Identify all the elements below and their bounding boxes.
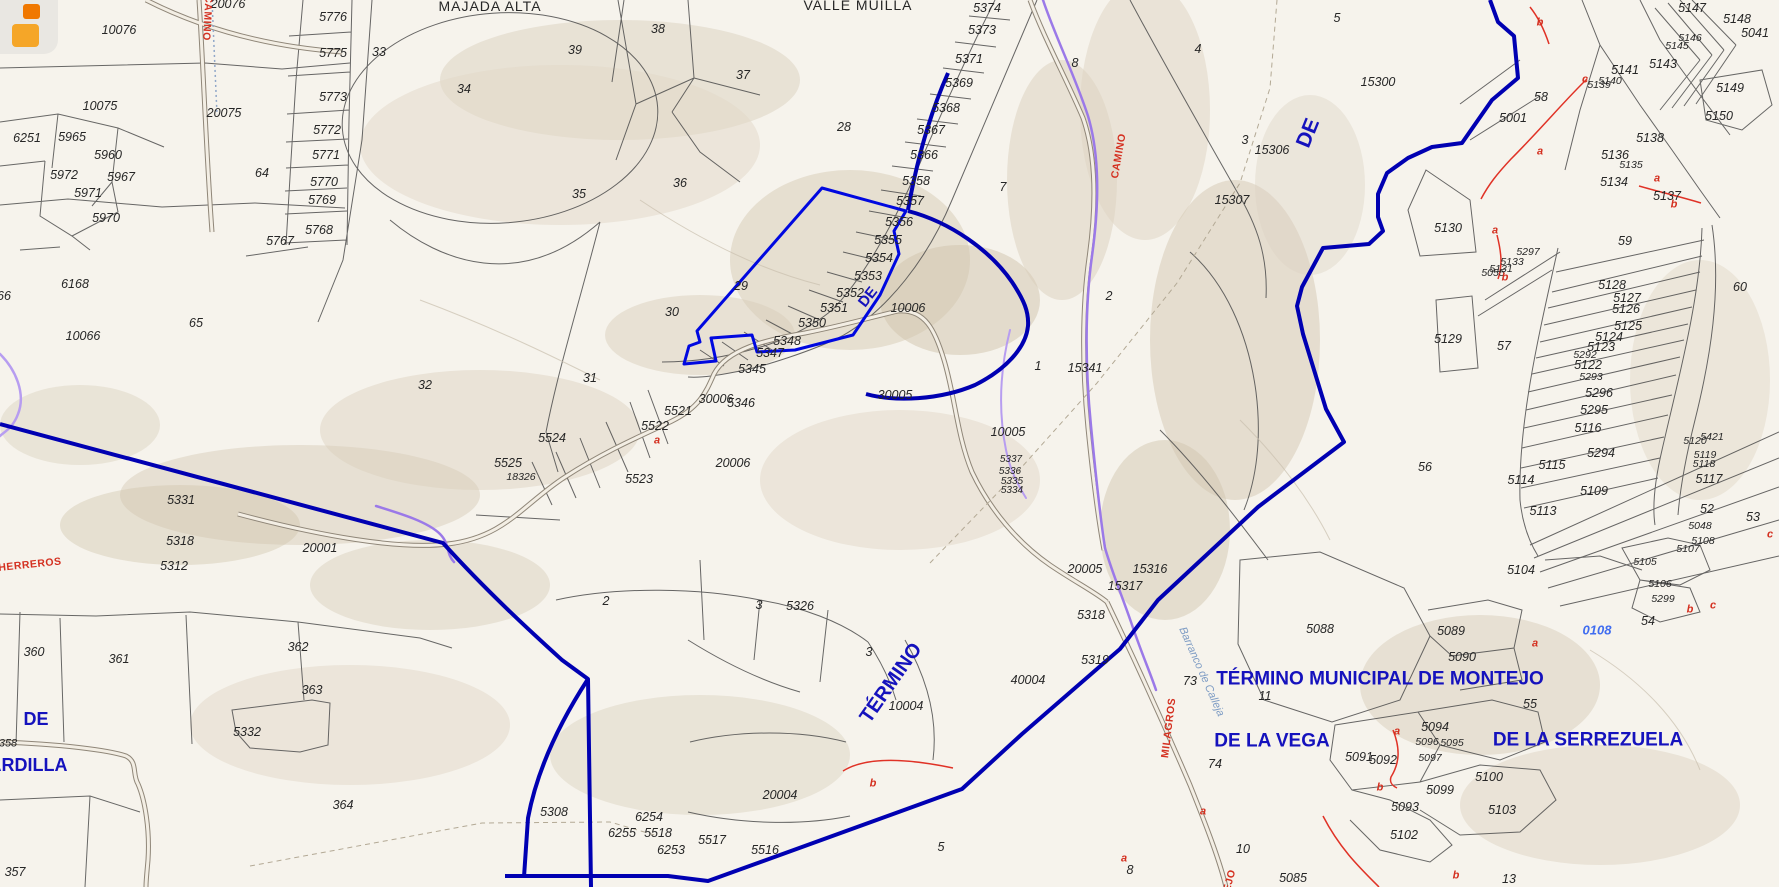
parcel-number-label: 5373 bbox=[968, 24, 996, 37]
parcel-number-label: 5118 bbox=[1693, 459, 1716, 470]
parcel-number-label: 5374 bbox=[973, 2, 1001, 15]
parcel-number-label: 5095 bbox=[1440, 738, 1463, 749]
parcel-number-label: 5145 bbox=[1665, 41, 1688, 52]
zone-letter-label: c bbox=[1582, 75, 1588, 86]
parcel-number-label: 5088 bbox=[1306, 623, 1334, 636]
parcel-number-label: 5143 bbox=[1649, 58, 1677, 71]
parcel-number-label: 5776 bbox=[319, 11, 347, 24]
parcel-number-label: 5967 bbox=[107, 171, 135, 184]
parcel-number-label: 5117 bbox=[1696, 473, 1723, 486]
parcel-number-label: 5041 bbox=[1741, 27, 1769, 40]
zone-letter-label: a bbox=[1394, 727, 1400, 738]
parcel-number-label: 15300 bbox=[1361, 76, 1396, 89]
parcel-number-label: 5345 bbox=[738, 363, 766, 376]
parcel-number-label: 5517 bbox=[698, 834, 726, 847]
parcel-number-label: 5350 bbox=[798, 317, 826, 330]
orange-square-icon bbox=[12, 24, 39, 47]
parcel-number-label: 1 bbox=[1035, 360, 1042, 373]
place-name-label: MAJADA ALTA bbox=[438, 0, 541, 13]
parcel-number-label: 5106 bbox=[1648, 579, 1671, 590]
parcel-number-label: 5294 bbox=[1587, 447, 1615, 460]
parcel-number-label: 361 bbox=[109, 653, 130, 666]
parcel-number-label: 5128 bbox=[1598, 279, 1626, 292]
parcel-number-label: 5768 bbox=[305, 224, 333, 237]
parcel-number-label: 15307 bbox=[1215, 194, 1250, 207]
road-name-label: MILAGROS bbox=[1160, 697, 1178, 758]
parcel-number-label: 39 bbox=[568, 44, 582, 57]
parcel-number-label: 5770 bbox=[310, 176, 338, 189]
municipality-label: ARDILLA bbox=[0, 756, 68, 774]
parcel-number-label: 5141 bbox=[1611, 64, 1639, 77]
parcel-number-label: 7 bbox=[1000, 181, 1007, 194]
parcel-number-label: 74 bbox=[1208, 758, 1222, 771]
parcel-number-label: 3 bbox=[1242, 134, 1249, 147]
zone-letter-label: b bbox=[1671, 200, 1678, 211]
parcel-number-label: 5124 bbox=[1595, 331, 1623, 344]
parcel-number-label: 10066 bbox=[66, 330, 101, 343]
parcel-number-label: 363 bbox=[302, 684, 323, 697]
parcel-number-label: 15317 bbox=[1108, 580, 1143, 593]
parcel-number-label: 5318 bbox=[1077, 609, 1105, 622]
parcel-number-label: 53 bbox=[1746, 511, 1760, 524]
parcel-number-label: 3 bbox=[866, 646, 873, 659]
parcel-number-label: 5522 bbox=[641, 420, 669, 433]
parcel-number-label: 6255 bbox=[608, 827, 636, 840]
parcel-number-label: 5336 bbox=[999, 467, 1021, 477]
parcel-number-label: 15316 bbox=[1133, 563, 1168, 576]
parcel-number-label: 5354 bbox=[865, 252, 893, 265]
parcel-number-label: 5104 bbox=[1507, 564, 1535, 577]
parcel-number-label: 5133 bbox=[1500, 257, 1523, 268]
parcel-number-label: 5129 bbox=[1434, 333, 1462, 346]
parcel-number-label: 10 bbox=[1236, 843, 1250, 856]
municipality-label: DE bbox=[1293, 116, 1323, 151]
parcel-number-label: 5048 bbox=[1688, 521, 1711, 532]
parcel-number-label: 5366 bbox=[910, 149, 938, 162]
parcel-number-label: 30006 bbox=[699, 393, 734, 406]
parcel-number-label: 5293 bbox=[1579, 372, 1602, 383]
parcel-number-label: 20075 bbox=[207, 107, 242, 120]
parcel-number-label: 5148 bbox=[1723, 13, 1751, 26]
parcel-number-label: 5109 bbox=[1580, 485, 1608, 498]
parcel-number-label: 5094 bbox=[1421, 721, 1449, 734]
parcel-number-label: 5355 bbox=[874, 234, 902, 247]
parcel-number-label: 5308 bbox=[540, 806, 568, 819]
parcel-number-label: 8 bbox=[1127, 864, 1134, 877]
parcel-number-label: 20006 bbox=[716, 457, 751, 470]
parcel-number-label: 38 bbox=[651, 23, 665, 36]
parcel-number-label: 5767 bbox=[266, 235, 294, 248]
parcel-number-label: 10006 bbox=[891, 302, 926, 315]
parcel-number-label: 5769 bbox=[308, 194, 336, 207]
cadastral-map[interactable]: 1007620076100752007557765775577357725771… bbox=[0, 0, 1779, 887]
parcel-number-label: 3 bbox=[756, 599, 763, 612]
parcel-number-label: 58 bbox=[1534, 91, 1548, 104]
parcel-number-label: 5100 bbox=[1475, 771, 1503, 784]
parcel-number-label: 0108 bbox=[1583, 624, 1612, 637]
parcel-number-label: 5775 bbox=[319, 47, 347, 60]
zone-letter-label: b bbox=[1377, 783, 1384, 794]
parcel-number-label: 358 bbox=[0, 739, 17, 750]
parcel-number-label: 20004 bbox=[763, 789, 798, 802]
parcel-number-label: 5092 bbox=[1369, 754, 1397, 767]
parcel-number-label: 54 bbox=[1641, 615, 1655, 628]
parcel-number-label: 5337 bbox=[1000, 455, 1022, 465]
zone-letter-label: b bbox=[1453, 871, 1460, 882]
stream-name-label: Barranco de Calleja bbox=[1176, 626, 1225, 719]
parcel-number-label: 5356 bbox=[885, 216, 913, 229]
parcel-number-label: 5146 bbox=[1678, 33, 1701, 44]
parcel-number-label: 65 bbox=[189, 317, 203, 330]
parcel-number-label: 5138 bbox=[1636, 132, 1664, 145]
parcel-number-label: 5521 bbox=[664, 405, 692, 418]
municipality-label: TÉRMINO MUNICIPAL DE MONTEJO bbox=[1216, 670, 1544, 689]
parcel-number-label: 5523 bbox=[625, 473, 653, 486]
parcel-number-label: 5319 bbox=[1081, 654, 1109, 667]
parcel-number-label: 11 bbox=[1259, 690, 1272, 703]
parcel-number-label: 10076 bbox=[102, 24, 137, 37]
parcel-number-label: 2 bbox=[1106, 290, 1113, 303]
parcel-number-label: 10005 bbox=[991, 426, 1026, 439]
parcel-number-label: 15341 bbox=[1068, 362, 1103, 375]
parcel-number-label: 5318 bbox=[166, 535, 194, 548]
parcel-number-label: 5369 bbox=[945, 77, 973, 90]
parcel-number-label: 60 bbox=[1733, 281, 1747, 294]
parcel-number-label: 5099 bbox=[1426, 784, 1454, 797]
parcel-number-label: 5150 bbox=[1705, 110, 1733, 123]
orange-square-icon bbox=[23, 4, 40, 19]
zone-letter-label: a bbox=[1532, 639, 1538, 650]
zone-letter-label: b bbox=[1537, 18, 1544, 29]
parcel-number-label: 5297 bbox=[1516, 247, 1539, 258]
zone-letter-label: b bbox=[1502, 273, 1509, 284]
parcel-number-label: 5122 bbox=[1574, 359, 1602, 372]
parcel-number-label: 5123 bbox=[1587, 341, 1615, 354]
parcel-number-label: 5971 bbox=[74, 187, 102, 200]
zone-letter-label: b bbox=[870, 779, 877, 790]
parcel-number-label: 4 bbox=[1195, 43, 1202, 56]
parcel-number-label: 5296 bbox=[1585, 387, 1613, 400]
parcel-number-label: 40004 bbox=[1011, 674, 1046, 687]
parcel-number-label: 59 bbox=[1618, 235, 1632, 248]
parcel-number-label: 5147 bbox=[1678, 2, 1706, 15]
parcel-number-label: 5368 bbox=[932, 102, 960, 115]
municipality-label: DE LA VEGA bbox=[1214, 732, 1329, 751]
parcel-number-label: 13 bbox=[1502, 873, 1516, 886]
parcel-number-label: 2 bbox=[603, 595, 610, 608]
zone-letter-label: a bbox=[1121, 854, 1127, 865]
parcel-number-label: 5295 bbox=[1580, 404, 1608, 417]
parcel-number-label: 5421 bbox=[1700, 432, 1723, 443]
road-name-label: CAMINO bbox=[201, 0, 214, 41]
parcel-number-label: 5346 bbox=[727, 397, 755, 410]
parcel-number-label: 5292 bbox=[1573, 350, 1596, 361]
parcel-number-label: 5135 bbox=[1619, 160, 1642, 171]
parcel-number-label: 37 bbox=[736, 69, 750, 82]
parcel-number-label: 66 bbox=[0, 290, 11, 303]
parcel-number-label: 5299 bbox=[1651, 594, 1674, 605]
parcel-number-label: 10004 bbox=[889, 700, 924, 713]
parcel-number-label: 5116 bbox=[1575, 422, 1602, 435]
parcel-number-label: 5125 bbox=[1614, 320, 1642, 333]
parcel-number-label: 36 bbox=[673, 177, 687, 190]
parcel-number-label: 5312 bbox=[160, 560, 188, 573]
parcel-number-label: 5332 bbox=[233, 726, 261, 739]
parcel-number-label: 5518 bbox=[644, 827, 672, 840]
road-name-label: HERREROS bbox=[0, 556, 62, 573]
parcel-number-label: 30 bbox=[665, 306, 679, 319]
parcel-number-label: 5131 bbox=[1489, 264, 1512, 275]
parcel-number-label: 33 bbox=[372, 46, 386, 59]
parcel-number-label: 362 bbox=[288, 641, 309, 654]
parcel-number-label: 5773 bbox=[319, 91, 347, 104]
parcel-number-label: 28 bbox=[837, 121, 851, 134]
parcel-number-label: 6168 bbox=[61, 278, 89, 291]
parcel-number-label: 5089 bbox=[1437, 625, 1465, 638]
parcel-number-label: 5516 bbox=[751, 844, 779, 857]
parcel-number-label: 5108 bbox=[1691, 536, 1714, 547]
zone-letter-label: a bbox=[1537, 147, 1543, 158]
parcel-number-label: 5105 bbox=[1633, 557, 1656, 568]
parcel-number-label: 5137 bbox=[1653, 190, 1681, 203]
parcel-number-label: 5096 bbox=[1415, 737, 1438, 748]
parcel-number-label: 5139 bbox=[1587, 80, 1610, 91]
parcel-number-label: 18326 bbox=[506, 472, 535, 483]
parcel-number-label: 20076 bbox=[211, 0, 246, 10]
parcel-number-label: 5055 bbox=[1481, 268, 1504, 279]
parcel-number-label: 5525 bbox=[494, 457, 522, 470]
parcel-number-label: 5 bbox=[938, 841, 945, 854]
parcel-number-label: 6254 bbox=[635, 811, 663, 824]
parcel-number-label: 5091 bbox=[1345, 751, 1373, 764]
parcel-number-label: 5970 bbox=[92, 212, 120, 225]
parcel-number-label: 5772 bbox=[313, 124, 341, 137]
parcel-number-label: 5334 bbox=[1001, 486, 1023, 496]
parcel-number-label: 6253 bbox=[657, 844, 685, 857]
zone-letter-label: a bbox=[1200, 807, 1206, 818]
zone-letter-label: a bbox=[654, 436, 660, 447]
parcel-number-label: 5331 bbox=[167, 494, 195, 507]
parcel-number-label: 5103 bbox=[1488, 804, 1516, 817]
parcel-number-label: 5126 bbox=[1612, 303, 1640, 316]
parcel-number-label: 5107 bbox=[1676, 544, 1699, 555]
parcel-number-label: 5119 bbox=[1694, 450, 1717, 461]
parcel-number-label: 35 bbox=[572, 188, 586, 201]
parcel-number-label: 5140 bbox=[1598, 76, 1621, 87]
parcel-number-label: 5127 bbox=[1613, 292, 1641, 305]
parcel-number-label: 5102 bbox=[1390, 829, 1418, 842]
parcel-number-label: 5113 bbox=[1530, 505, 1557, 518]
parcel-number-label: 20001 bbox=[303, 542, 338, 555]
parcel-number-label: 5351 bbox=[820, 302, 848, 315]
map-labels: 1007620076100752007557765775577357725771… bbox=[0, 0, 1779, 887]
parcel-number-label: 5972 bbox=[50, 169, 78, 182]
parcel-number-label: 15306 bbox=[1255, 144, 1290, 157]
municipality-label: DE LA SERREZUELA bbox=[1493, 731, 1683, 750]
parcel-number-label: 55 bbox=[1523, 698, 1537, 711]
parcel-number-label: 5347 bbox=[756, 347, 784, 360]
road-name-label: CAMINO bbox=[1110, 133, 1128, 180]
parcel-number-label: 5 bbox=[1334, 12, 1341, 25]
parcel-number-label: 5136 bbox=[1601, 149, 1629, 162]
parcel-number-label: 5120 bbox=[1683, 436, 1706, 447]
parcel-number-label: 360 bbox=[24, 646, 45, 659]
parcel-number-label: 5771 bbox=[312, 149, 340, 162]
parcel-number-label: 5130 bbox=[1434, 222, 1462, 235]
parcel-number-label: 8 bbox=[1072, 57, 1079, 70]
parcel-number-label: 6251 bbox=[13, 132, 41, 145]
parcel-number-label: 20005 bbox=[1068, 563, 1103, 576]
parcel-number-label: 5352 bbox=[836, 287, 864, 300]
parcel-number-label: 5348 bbox=[773, 335, 801, 348]
municipality-label: DE bbox=[23, 710, 48, 728]
parcel-number-label: 29 bbox=[734, 280, 748, 293]
parcel-number-label: 5965 bbox=[58, 131, 86, 144]
place-name-label: VALLE MUILLA bbox=[803, 0, 912, 12]
parcel-number-label: 5367 bbox=[917, 124, 945, 137]
parcel-number-label: 34 bbox=[457, 83, 471, 96]
parcel-number-label: 56 bbox=[1418, 461, 1432, 474]
parcel-number-label: 32 bbox=[418, 379, 432, 392]
parcel-number-label: 5114 bbox=[1508, 474, 1535, 487]
parcel-number-label: 5085 bbox=[1279, 872, 1307, 885]
parcel-number-label: 5093 bbox=[1391, 801, 1419, 814]
zone-letter-label: a bbox=[1492, 226, 1498, 237]
parcel-number-label: 64 bbox=[255, 167, 269, 180]
parcel-number-label: 5960 bbox=[94, 149, 122, 162]
parcel-number-label: 5134 bbox=[1600, 176, 1628, 189]
zone-letter-label: b bbox=[1687, 605, 1694, 616]
municipality-label: DE bbox=[856, 284, 881, 310]
parcel-number-label: 73 bbox=[1183, 675, 1197, 688]
parcel-number-label: 5353 bbox=[854, 270, 882, 283]
parcel-number-label: 5358 bbox=[902, 175, 930, 188]
parcel-number-label: 357 bbox=[5, 866, 26, 879]
parcel-number-label: 57 bbox=[1497, 340, 1511, 353]
parcel-number-label: 5524 bbox=[538, 432, 566, 445]
zone-letter-label: c bbox=[1767, 530, 1773, 541]
municipality-label: TÉRMINO bbox=[856, 639, 925, 726]
parcel-number-label: 5115 bbox=[1539, 459, 1566, 472]
parcel-number-label: 5326 bbox=[786, 600, 814, 613]
parcel-number-label: 5001 bbox=[1499, 112, 1527, 125]
zone-letter-label: a bbox=[1654, 174, 1660, 185]
parcel-number-label: 30005 bbox=[878, 389, 913, 402]
parcel-number-label: 31 bbox=[583, 372, 597, 385]
parcel-number-label: 5335 bbox=[1001, 477, 1023, 487]
parcel-number-label: 10075 bbox=[83, 100, 118, 113]
road-name-label: TEJO bbox=[1220, 868, 1238, 887]
parcel-number-label: 5090 bbox=[1448, 651, 1476, 664]
parcel-number-label: 364 bbox=[333, 799, 354, 812]
parcel-number-label: 5371 bbox=[955, 53, 983, 66]
zone-letter-label: c bbox=[1710, 601, 1716, 612]
parcel-number-label: 5149 bbox=[1716, 82, 1744, 95]
parcel-number-label: 5097 bbox=[1418, 753, 1441, 764]
app-logo-icon[interactable] bbox=[0, 0, 58, 54]
parcel-number-label: 5357 bbox=[896, 195, 924, 208]
parcel-number-label: 52 bbox=[1700, 503, 1714, 516]
